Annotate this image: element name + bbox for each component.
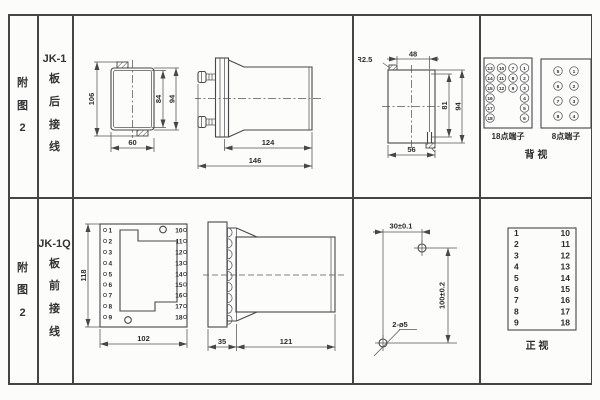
terminal-number: 15 [175, 282, 183, 289]
cutout-outline [382, 63, 442, 152]
grid-line-v4 [352, 14, 354, 385]
terminal-number: 16 [175, 292, 183, 299]
table-number: 17 [561, 306, 571, 316]
row1-figure-label: 附图2 [16, 72, 29, 140]
grid-line-middle [8, 197, 592, 199]
terminal-number: 2 [523, 76, 526, 82]
dim-60: 60 [128, 138, 136, 147]
terminal-number: 5 [523, 106, 526, 112]
row1-model-cell: JK-1 板后接线 [37, 15, 72, 197]
table-number: 10 [561, 228, 571, 238]
jk1-front-dimensions: 106 84 94 60 [87, 62, 179, 152]
terminal-number: 5 [557, 69, 560, 75]
terminal-number: 4 [523, 96, 526, 102]
label-18-point: 18点端子 [492, 131, 525, 141]
table-number: 1 [514, 228, 519, 238]
terminal-number: 10 [499, 66, 505, 72]
terminal-number: 1 [109, 227, 113, 234]
jk1q-side-body [203, 222, 345, 327]
dim-102: 102 [137, 334, 150, 343]
row2-wiring-label: 板前接线 [48, 253, 61, 343]
jk1q-left-terminals: 1 2 3 4 5 6 7 8 9 [103, 227, 112, 321]
dim-48: 48 [409, 50, 417, 59]
jk1q-front-drawing: 1 2 3 4 5 6 7 8 9 10 11 12 13 14 15 16 1… [78, 213, 204, 355]
row2-figure-cell: 附图2 [8, 198, 37, 383]
terminal-number: 17 [175, 303, 183, 310]
table-number: 5 [514, 273, 519, 283]
terminal-number: 10 [175, 227, 183, 234]
terminal-number: 3 [109, 249, 113, 256]
jk1q-front-dimensions: 118 102 [79, 224, 187, 348]
dim-121: 121 [280, 337, 293, 346]
terminal-number: 17 [487, 106, 493, 112]
terminal-number: 9 [109, 314, 113, 321]
jk1q-terminal-front-view: 110 211 312 413 514 615 716 817 918 正 视 [495, 218, 591, 363]
jk1q-side-drawing: 35 121 [203, 213, 348, 355]
terminal-number: 6 [109, 282, 113, 289]
terminal-number: 18 [175, 314, 183, 321]
mounting-hole-bottom [125, 317, 132, 324]
grid-line-bottom [8, 383, 592, 385]
terminal-number: 13 [487, 66, 493, 72]
dim-94-cutout: 94 [454, 102, 463, 111]
terminal-number: 4 [109, 260, 113, 267]
grid-line-top [8, 14, 592, 16]
table-number: 15 [561, 284, 571, 294]
table-number: 8 [514, 306, 519, 316]
dim-56: 56 [407, 145, 415, 154]
table-number: 13 [561, 262, 571, 272]
terminal-number: 8 [109, 303, 113, 310]
label-8-point: 8点端子 [552, 131, 580, 141]
jk1q-front-outline [100, 224, 187, 327]
dim-100: 100±0.2 [438, 282, 447, 309]
terminal-number: 15 [487, 86, 493, 92]
locking-screw-slot [426, 143, 435, 148]
dim-35: 35 [218, 337, 226, 346]
terminal-circles-18: 13 14 15 16 17 18 10 11 12 7 8 9 1 2 3 4… [486, 64, 529, 123]
rear-view-label: 背 视 [525, 148, 548, 161]
figure-sheet: 附图2 JK-1 板后接线 附图2 JK-1Q 板前接线 106 [0, 0, 600, 400]
terminal-table-numbers: 110 211 312 413 514 615 716 817 918 [514, 228, 570, 328]
terminal-number: 6 [523, 116, 526, 122]
jk1-case-front-drawing: 106 84 94 60 [85, 40, 190, 170]
jk1q-right-terminals: 10 11 12 13 14 15 16 17 18 [175, 227, 186, 321]
row1-model-label: JK-1 [43, 53, 67, 65]
terminal-number: 7 [557, 99, 560, 105]
terminal-number: 3 [573, 99, 576, 105]
row1-figure-cell: 附图2 [8, 15, 37, 197]
terminal-number: 14 [487, 76, 493, 82]
mounting-bolt-bottom [198, 117, 216, 128]
table-number: 4 [514, 262, 519, 272]
terminal-number: 11 [176, 238, 183, 245]
terminal-number: 3 [523, 86, 526, 92]
table-number: 2 [514, 239, 519, 249]
table-number: 7 [514, 295, 519, 305]
terminal-number: 8 [557, 114, 560, 120]
jk1-panel-cutout-drawing: 2-R2.5 48 81 94 56 [358, 40, 476, 170]
dim-84: 84 [154, 94, 163, 103]
table-number: 9 [514, 318, 519, 328]
radius-label: 2-R2.5 [358, 55, 372, 64]
jk1-terminal-rear-view: 13 14 15 16 17 18 10 11 12 7 8 9 1 2 3 4… [481, 45, 591, 167]
terminal-circles-8: 5 6 7 8 1 2 3 4 [554, 67, 579, 121]
row2-model-cell: JK-1Q 板前接线 [37, 198, 72, 383]
table-number: 11 [561, 239, 570, 249]
terminal-number: 18 [487, 116, 493, 122]
front-view-label: 正 视 [526, 339, 549, 352]
row2-model-label: JK-1Q [38, 238, 70, 250]
grid-line-v3 [72, 14, 74, 385]
terminal-number: 14 [175, 271, 183, 278]
drill-holes: 2-ø5 [374, 240, 426, 356]
terminal-number: 9 [512, 86, 515, 92]
terminal-block-8 [541, 59, 591, 128]
dim-118: 118 [79, 269, 88, 281]
terminal-number: 4 [573, 114, 576, 120]
mounting-bolt-top [198, 72, 216, 83]
dim-30: 30±0.1 [390, 222, 413, 231]
drill-dimensions: 30±0.1 100±0.2 [373, 222, 457, 344]
dim-106: 106 [87, 93, 96, 106]
table-number: 6 [514, 284, 519, 294]
terminal-number: 8 [512, 76, 515, 82]
terminal-number: 2 [573, 84, 576, 90]
bottom-terminal-tab [137, 130, 148, 136]
terminal-number: 13 [175, 260, 183, 267]
row2-figure-label: 附图2 [16, 257, 29, 325]
terminal-number: 16 [487, 96, 493, 102]
terminal-number: 7 [512, 66, 515, 72]
terminal-number: 7 [109, 292, 113, 299]
table-number: 16 [561, 295, 571, 305]
dim-124: 124 [262, 138, 275, 147]
jk1q-drilling-drawing: 30±0.1 100±0.2 2-ø5 [360, 215, 478, 363]
hole-diameter-label: 2-ø5 [392, 320, 407, 329]
table-number: 18 [561, 318, 571, 328]
terminal-number: 1 [523, 66, 526, 72]
mounting-hole-top [160, 226, 167, 233]
dim-81: 81 [440, 101, 449, 109]
dim-146: 146 [249, 156, 262, 165]
terminal-number: 2 [109, 238, 113, 245]
terminal-number: 1 [573, 69, 576, 75]
table-number: 3 [514, 250, 519, 260]
terminal-number: 12 [499, 86, 505, 92]
jk1-case-outline [111, 60, 154, 138]
table-number: 14 [561, 273, 571, 283]
row1-wiring-label: 板后接线 [48, 68, 61, 158]
terminal-number: 5 [109, 271, 113, 278]
terminal-number: 12 [175, 249, 183, 256]
terminal-number: 11 [499, 76, 504, 82]
dim-94: 94 [168, 94, 177, 103]
terminal-number: 6 [557, 84, 560, 90]
corner-notch [389, 65, 397, 70]
jk1-case-side-drawing: 124 146 [195, 40, 347, 175]
table-number: 12 [561, 250, 571, 260]
top-terminal-tab [117, 62, 128, 68]
